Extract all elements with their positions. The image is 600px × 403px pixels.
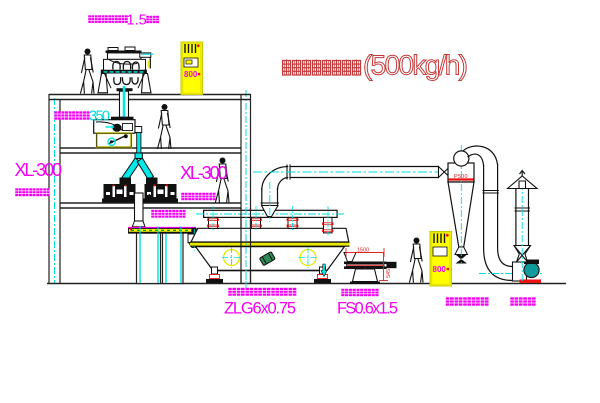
- svg-text:350: 350: [89, 109, 110, 125]
- svg-text:ZLG6x0.75: ZLG6x0.75: [224, 300, 296, 318]
- svg-text:800: 800: [433, 265, 447, 274]
- svg-text:1.5: 1.5: [127, 13, 147, 29]
- svg-text:P500: P500: [454, 174, 468, 180]
- svg-text:800: 800: [184, 70, 198, 79]
- svg-text:1500: 1500: [357, 248, 369, 254]
- svg-text:XL-300: XL-300: [15, 160, 63, 180]
- svg-text:FS0.6x1.5: FS0.6x1.5: [337, 300, 398, 318]
- svg-text:(500kg/h): (500kg/h): [363, 50, 468, 81]
- svg-text:XL-300: XL-300: [180, 163, 228, 183]
- svg-text:545: 545: [386, 269, 392, 278]
